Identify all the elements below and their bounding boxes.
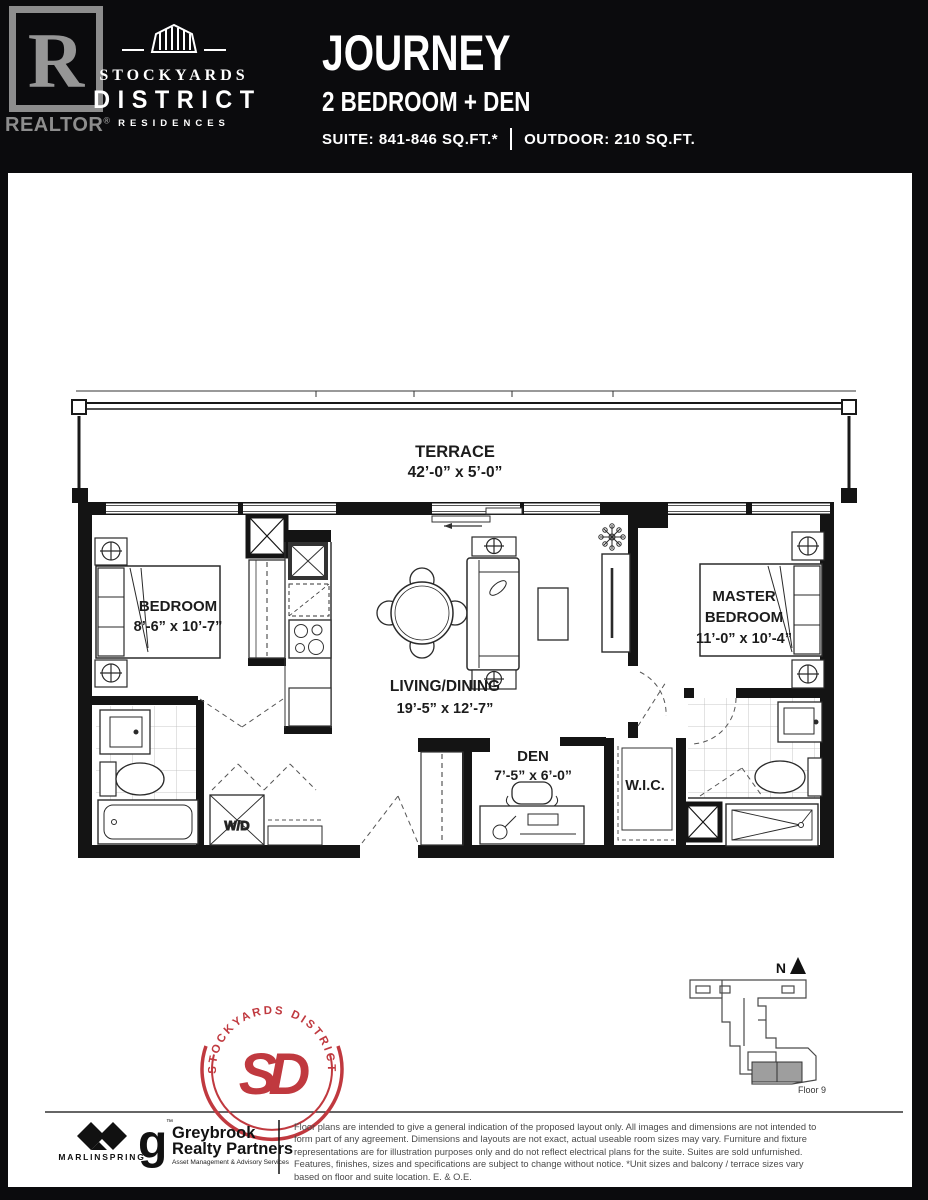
north-label: N: [776, 960, 786, 976]
plant-icon: [599, 524, 625, 550]
chair-icon: [506, 782, 557, 806]
marlinspring-logo: MARLINSPRING: [58, 1122, 145, 1162]
toilet-icon: [100, 762, 164, 796]
living-dims: 19’-5” x 12’-7”: [397, 701, 494, 717]
tv-console-icon: [602, 554, 630, 652]
kitchen-sink-icon: [290, 544, 326, 578]
desk-icon: [480, 806, 584, 844]
greybrook-line2: Realty Partners: [172, 1140, 293, 1158]
den-label: DEN: [517, 748, 549, 765]
master-dims: 11’-0” x 10’-4”: [696, 631, 792, 647]
living-label: LIVING/DINING: [390, 678, 500, 695]
kitchen: [285, 542, 331, 728]
shower-icon: [726, 804, 818, 846]
bedroom-label: BEDROOM: [139, 598, 217, 615]
dining-table-icon: [377, 568, 467, 658]
master-label-2: BEDROOM: [705, 609, 783, 626]
bathroom-sink-icon: [100, 710, 150, 754]
window: [752, 504, 830, 514]
bathtub-icon: [98, 800, 198, 844]
window: [668, 504, 746, 514]
window: [524, 504, 600, 514]
seal-monogram: SD: [239, 1042, 310, 1107]
windows: [106, 504, 830, 514]
toilet-icon: [755, 758, 822, 796]
wic-label: W.I.C.: [625, 778, 664, 794]
disclaimer-line: form part of any agreement. Dimensions a…: [294, 1133, 908, 1145]
window: [243, 504, 336, 514]
bifold-door-swing: [212, 764, 316, 790]
disclaimer-text: Floor plans are intended to give a gener…: [294, 1121, 908, 1183]
nightstand-icon: [95, 660, 127, 687]
foyer: [362, 752, 463, 845]
master-door-swing: [638, 672, 666, 726]
disclaimer-line: Floor plans are intended to give a gener…: [294, 1121, 908, 1133]
floor-label: Floor 9: [798, 1085, 826, 1095]
stove-icon: [289, 620, 331, 658]
wd-label: W/D: [224, 818, 249, 833]
bedroom: BEDROOM 8’-6” x 10’-7”: [95, 538, 222, 687]
closet-icon: [686, 804, 720, 840]
coffee-table-icon: [538, 588, 568, 640]
counter-icon: [289, 688, 331, 726]
bathroom-sink-icon: [778, 702, 822, 742]
wic: W.I.C.: [618, 746, 674, 840]
north-arrow-icon: [790, 957, 806, 974]
closet-icon: [248, 516, 286, 556]
marlinspring-wordmark: MARLINSPRING: [58, 1152, 145, 1162]
entry-door-swing: [362, 796, 418, 843]
wd-closet: W/D: [210, 764, 322, 845]
master-bath: [686, 698, 822, 846]
bedroom-closet-icon: [249, 560, 285, 658]
closet-cabinet: [268, 826, 322, 845]
nightstand-icon: [95, 538, 127, 565]
foyer-closet-icon: [421, 752, 463, 845]
stockyards-district-seal: STOCKYARDS DISTRICT SD: [202, 1005, 342, 1140]
bedroom-door-swing: [200, 699, 283, 727]
svg-text:TERRACE: TERRACE: [415, 443, 495, 461]
page: R REALTOR® STOCKYARDS DISTRICT RESIDENCE…: [0, 0, 928, 1200]
den: DEN 7’-5” x 6’-0”: [480, 748, 584, 844]
greybrook-g: g: [138, 1116, 167, 1169]
floorplan-drawing: TERRACE 42’-0” x 5’-0”: [0, 0, 928, 1200]
sofa-icon: [467, 558, 519, 670]
disclaimer-line: representations are for illustration pur…: [294, 1146, 908, 1158]
end-table-icon: [472, 537, 516, 556]
bedroom-dims: 8’-6” x 10’-7”: [134, 619, 223, 635]
greybrook-tagline: Asset Management & Advisory Services: [172, 1159, 290, 1166]
keyplate: N Floor 9: [690, 957, 826, 1095]
nightstand-icon: [792, 532, 824, 560]
living-dining: LIVING/DINING 19’-5” x 12’-7”: [377, 524, 630, 717]
disclaimer-line: based on floor and suite location. E. & …: [294, 1171, 908, 1183]
greybrook-logo: g ™ Greybrook Realty Partners Asset Mana…: [138, 1116, 293, 1169]
disclaimer-line: Features, finishes, sizes and specificat…: [294, 1158, 908, 1170]
svg-text:42’-0” x 5’-0”: 42’-0” x 5’-0”: [408, 464, 503, 481]
main-bath: W/D: [96, 699, 322, 845]
den-dims: 7’-5” x 6’-0”: [494, 767, 572, 783]
terrace-label: TERRACE 42’-0” x 5’-0”: [408, 443, 503, 481]
nightstand-icon: [792, 660, 824, 688]
window: [106, 504, 238, 514]
master-label-1: MASTER: [712, 588, 776, 605]
